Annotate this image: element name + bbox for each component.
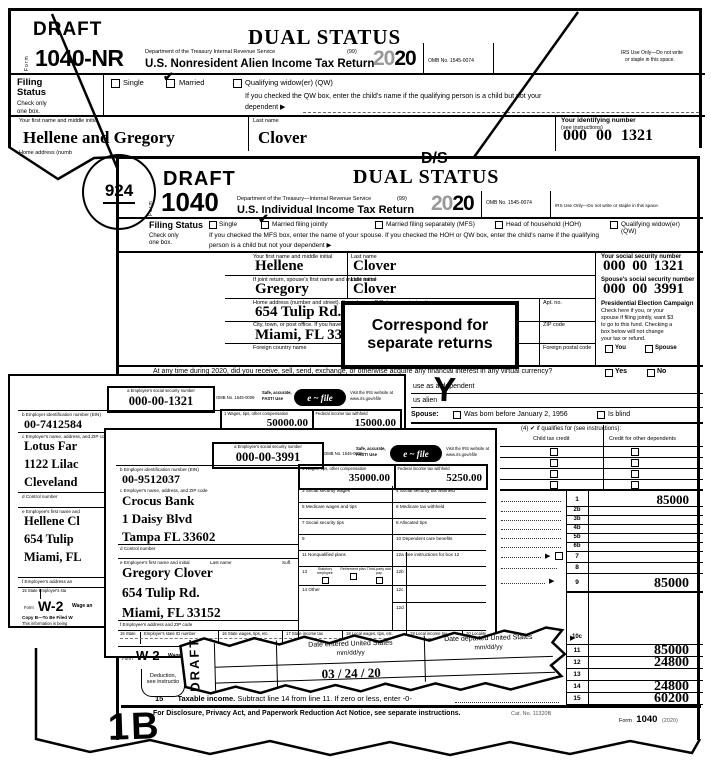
tax-line-row: 1 85000: [566, 492, 703, 507]
footer-form-year: (2020): [662, 718, 678, 724]
control-number-label: d Control number: [120, 546, 156, 551]
draft-watermark: DRAFT: [186, 644, 202, 692]
last-name-value: Clover: [353, 258, 396, 275]
divider: [595, 251, 596, 366]
retirement-label: Retirement plan: [340, 568, 366, 572]
spouse-ssn-value: 000 00 3991: [603, 281, 684, 298]
spouse-blind-checkbox: [597, 411, 605, 419]
form-title: Wage an: [72, 604, 92, 610]
leader-dots: [501, 549, 541, 558]
wages-value: 35000.00: [300, 472, 390, 484]
leader-dots: [501, 575, 545, 584]
leader-dots: [501, 521, 561, 530]
line-number: 4b: [566, 525, 588, 531]
mfj-checkmark: ✔: [258, 211, 269, 227]
efile-logo: e ~ file: [294, 389, 346, 406]
pec-you-checkbox: [605, 345, 613, 353]
mfs-note-2: person is a child but not your dependent…: [209, 242, 331, 249]
vc-yes-label: Yes: [615, 368, 627, 376]
line-number: 9: [566, 579, 588, 586]
divider: [500, 489, 703, 491]
info-label: This information is being: [22, 622, 67, 627]
mfs-label: Married filing separately (MFS): [386, 221, 475, 228]
filing-status-label: Filing Status: [149, 220, 205, 230]
box14-label: 14 Other: [302, 587, 320, 592]
divider: [18, 507, 106, 508]
leader-dots: [501, 493, 561, 502]
ein-value: 00-7412584: [24, 417, 82, 432]
ssn-box: a Employee's social security number 000-…: [107, 386, 215, 413]
divider: [347, 251, 348, 298]
handwritten-1b-mark: 1B: [107, 705, 161, 750]
efile-logo: e ~ file: [390, 445, 442, 462]
box13-label: 13: [302, 569, 307, 574]
circled-924-annotation: 924: [82, 154, 156, 230]
box12b-label: 12b: [396, 569, 404, 574]
box10-label: 10 Dependent care benefits: [396, 536, 452, 541]
fed-tax-box: 2 Federal income tax withheld 5250.00: [392, 464, 488, 490]
pec-text-1: Check here if you, or your: [601, 308, 664, 314]
line-number: 5b: [566, 534, 588, 540]
arrow-icon: ▶: [545, 552, 550, 560]
copy-b-label: Copy B—To Be Filed W: [22, 615, 73, 620]
ssn-value: 000-00-3991: [214, 450, 322, 465]
sickpay-checkbox: [376, 577, 383, 584]
box3-label: 3 Social security wages: [302, 488, 350, 493]
box15-label: 15 State: [120, 632, 136, 637]
box4-label: 4 Social security tax withheld: [396, 488, 455, 493]
spouse-born-label: Was born before January 2, 1956: [464, 411, 568, 419]
dependent-row-checkbox: [631, 481, 639, 489]
dependent-row-checkbox: [550, 481, 558, 489]
correspond-text-2: separate returns: [367, 335, 492, 353]
dependent-row-checkbox: [631, 470, 639, 478]
divider: [118, 544, 298, 545]
line-number: 3b: [566, 516, 588, 522]
spouse-first-name-value: Gregory: [255, 281, 309, 298]
check-only-note: Check only: [149, 233, 179, 240]
pec-you-label: You: [615, 345, 626, 352]
leader-dots: [501, 503, 561, 512]
leader-dots: [501, 560, 557, 569]
box11-label: 11 Nonqualified plans: [302, 552, 346, 557]
pec-text-3: to go to this fund. Checking a: [601, 322, 672, 328]
box8-label: 8 Allocated tips: [396, 520, 427, 525]
pec-spouse-checkbox: [645, 345, 653, 353]
box12d-label: 12d: [396, 605, 404, 610]
divider: [225, 275, 595, 276]
box6-label: 6 Medicare tax withheld: [396, 504, 444, 509]
leader-dots: [501, 530, 561, 539]
strike-line-left: [52, 14, 118, 170]
form-number: W-2: [136, 648, 160, 663]
ninety-nine: (99): [397, 196, 407, 202]
child-tax-credit-header: Child tax credit: [533, 436, 569, 442]
hoh-label: Head of household (HOH): [506, 221, 581, 228]
correspond-callout-box: Correspond for separate returns: [341, 301, 519, 369]
line-number: 2b: [566, 507, 588, 513]
disclosure-footer: For Disclosure, Privacy Act, and Paperwo…: [153, 710, 461, 718]
divider: [298, 534, 486, 535]
employee-name: Hellene Cl: [24, 514, 80, 529]
mfs-note: If you checked the MFS box, enter the na…: [209, 232, 703, 239]
fed-tax-value: 15000.00: [310, 417, 396, 429]
form-word: Form: [122, 656, 133, 661]
dependent-row-checkbox: [631, 448, 639, 456]
tax-line-row: 9 85000: [566, 573, 703, 593]
box13-sickpay: Third-party sick pay: [366, 568, 392, 584]
last-name-label: Last name: [210, 560, 231, 565]
line-number: 1: [566, 496, 588, 503]
safe-accurate-label-2: FAST! Use: [262, 397, 283, 402]
divider: [392, 486, 393, 630]
pec-text-4: box below will not change: [601, 329, 664, 335]
safe-accurate-label: Safe, accurate,: [356, 447, 386, 452]
divider: [18, 577, 106, 578]
employee-city: Miami, FL: [24, 550, 82, 565]
employer-name: Lotus Far: [24, 439, 77, 454]
irs-use-only: IRS Use Only—Do not write or staple in t…: [555, 203, 703, 208]
employee-street: 654 Tulip: [24, 532, 74, 547]
visit-irs-label-2: www.irs.gov/efile: [350, 397, 381, 402]
ssn-value: 000-00-1321: [109, 394, 213, 409]
line7-checkbox: [555, 552, 563, 560]
tax-year-outline: 20: [431, 192, 452, 215]
vc-yes-checkbox: [605, 369, 613, 377]
leader-dots: [501, 539, 561, 548]
divider: [500, 446, 703, 447]
box13-retirement: Retirement plan: [340, 568, 366, 580]
divider: [18, 492, 106, 493]
employee-address-label: f Employee's address an: [22, 579, 72, 584]
dependent-row-checkbox: [550, 459, 558, 467]
form-word: Form: [24, 606, 34, 611]
statutory-checkbox: [322, 577, 329, 584]
footer-form-id: Form 1040 (2020): [619, 709, 678, 727]
box12c-label: 12c: [396, 587, 403, 592]
pec-spouse-label: Spouse: [655, 345, 677, 352]
foreign-country-label: Foreign country name: [253, 345, 307, 351]
line-number: 6b: [566, 543, 588, 549]
pec-text-2: spouse if filing jointly, want $3: [601, 315, 673, 321]
divider: [500, 457, 703, 458]
safe-accurate-label-2: FAST! Use: [356, 453, 377, 458]
divider: [550, 191, 551, 217]
pec-heading: Presidential Election Campaign: [601, 300, 694, 307]
spouse-blind-label: Is blind: [608, 411, 630, 419]
spouse-born-checkbox: [453, 411, 461, 419]
check-only-note-2: one box.: [149, 240, 172, 247]
mfj-label: Married filing jointly: [272, 221, 328, 228]
ein-value: 00-9512037: [122, 472, 180, 487]
tax-line-row: 15 60200: [566, 692, 703, 705]
line-amount: 85000: [589, 576, 689, 592]
strike-line-right: [462, 12, 578, 174]
divider: [118, 620, 298, 621]
single-checkbox: [209, 221, 217, 229]
form-number: W-2: [38, 598, 63, 614]
employee-name: Gregory Clover: [122, 565, 213, 581]
hoh-checkbox: [495, 221, 503, 229]
tax-year: 2020: [431, 192, 474, 216]
dept-line: Department of the Treasury—Internal Reve…: [237, 196, 397, 202]
suffix-label: Suff.: [282, 560, 291, 565]
divider: [539, 298, 540, 366]
vc-no-label: No: [657, 368, 666, 376]
dual-status-tax-packet: DRAFT DUAL STATUS Form 1040-NR Departmen…: [0, 0, 711, 768]
visit-irs-label: Visit the IRS website at: [350, 391, 393, 396]
divider: [298, 502, 486, 503]
wages-box: 1 Wages, tips, other compensation 35000.…: [298, 464, 396, 490]
fed-tax-value: 5250.00: [392, 472, 482, 484]
visit-irs-label: Visit the IRS website at: [446, 447, 489, 452]
qw-checkbox: [610, 221, 618, 229]
handwritten-y-mark: Y: [432, 370, 457, 410]
spouse-age-label: Spouse:: [411, 411, 439, 419]
tax-year-bold: 20: [452, 192, 473, 215]
spouse-last-name-value: Clover: [353, 281, 396, 298]
employee-city: Miami, FL 33152: [122, 605, 221, 621]
dual-status-heading: DUAL STATUS: [353, 166, 499, 189]
divider: [118, 558, 298, 559]
omb-number: OMB No. 1545-0074: [486, 201, 548, 207]
statutory-label: Statutory employee: [312, 568, 338, 576]
employer-street: 1122 Lilac: [24, 457, 79, 472]
employer-city: Cleveland: [24, 475, 77, 490]
dependent-row-checkbox: [631, 459, 639, 467]
home-address-value: 654 Tulip Rd.: [255, 304, 341, 321]
control-number-label: d Control number: [22, 494, 58, 499]
footer-form-number: 1040: [636, 714, 657, 725]
divider: [500, 479, 703, 480]
employer-name: Crocus Bank: [122, 493, 194, 509]
omb-number: OMB No. 1545-0008: [216, 396, 254, 401]
divider: [406, 552, 407, 630]
leader-dots: [501, 512, 561, 521]
divider: [119, 217, 703, 219]
arrow-icon: ▶: [549, 577, 554, 585]
box7-label: 7 Social security tips: [302, 520, 344, 525]
catalog-number: Cat. No. 11320B: [511, 711, 551, 717]
box9-label: 9: [302, 536, 305, 541]
safe-accurate-label: Safe, accurate,: [262, 391, 292, 396]
line15-number: 15: [155, 694, 163, 703]
visit-irs-label-2: www.irs.gov/efile: [446, 453, 477, 458]
employer-street: 1 Daisy Blvd: [122, 511, 192, 527]
apt-label: Apt. no.: [543, 300, 562, 306]
foreign-postal-label: Foreign postal code: [543, 345, 591, 351]
dependents-qualify-header: (4) ✔ if qualifies for (see instructions…: [521, 426, 621, 433]
first-name-value: Hellene: [255, 258, 303, 275]
divider: [481, 191, 482, 217]
footer-form-word: Form: [619, 718, 632, 724]
sickpay-label: Third-party sick pay: [366, 568, 392, 576]
state-row-label: 15 State Employer's sta: [22, 589, 66, 594]
ssn-value: 000 00 1321: [603, 258, 684, 275]
divider: [119, 251, 703, 253]
divider: [411, 422, 703, 424]
dependent-row-checkbox: [550, 448, 558, 456]
vc-no-checkbox: [647, 369, 655, 377]
line-number: 8: [566, 564, 588, 571]
circled-number: 924: [103, 181, 135, 204]
date-entered-departed-strip: DRAFT Date entered United States mm/dd/y…: [174, 620, 576, 710]
retirement-checkbox: [350, 573, 357, 580]
form-number: 1040: [161, 187, 219, 218]
other-dependents-header: Credit for other dependents: [609, 436, 676, 442]
wages-value: 50000.00: [222, 417, 308, 429]
divider: [500, 468, 703, 469]
employee-street: 654 Tulip Rd.: [122, 585, 200, 601]
divider: [298, 550, 486, 551]
divider: [298, 518, 486, 519]
divider: [298, 465, 299, 646]
box13-statutory: Statutory employee: [312, 568, 338, 584]
single-label: Single: [219, 221, 237, 228]
box5-label: 5 Medicare wages and tips: [302, 504, 357, 509]
pec-text-5: your tax or refund.: [601, 336, 646, 342]
employer-city: Tampa FL 33602: [122, 529, 215, 545]
divider: [298, 585, 486, 586]
line-number: 7: [566, 553, 588, 560]
employee-address-label: f Employee's address and ZIP code: [120, 622, 192, 627]
dependent-row-checkbox: [550, 470, 558, 478]
mfs-checkbox: [375, 221, 383, 229]
correspond-text-1: Correspond for: [372, 317, 488, 335]
zip-label: ZIP code: [543, 322, 565, 328]
